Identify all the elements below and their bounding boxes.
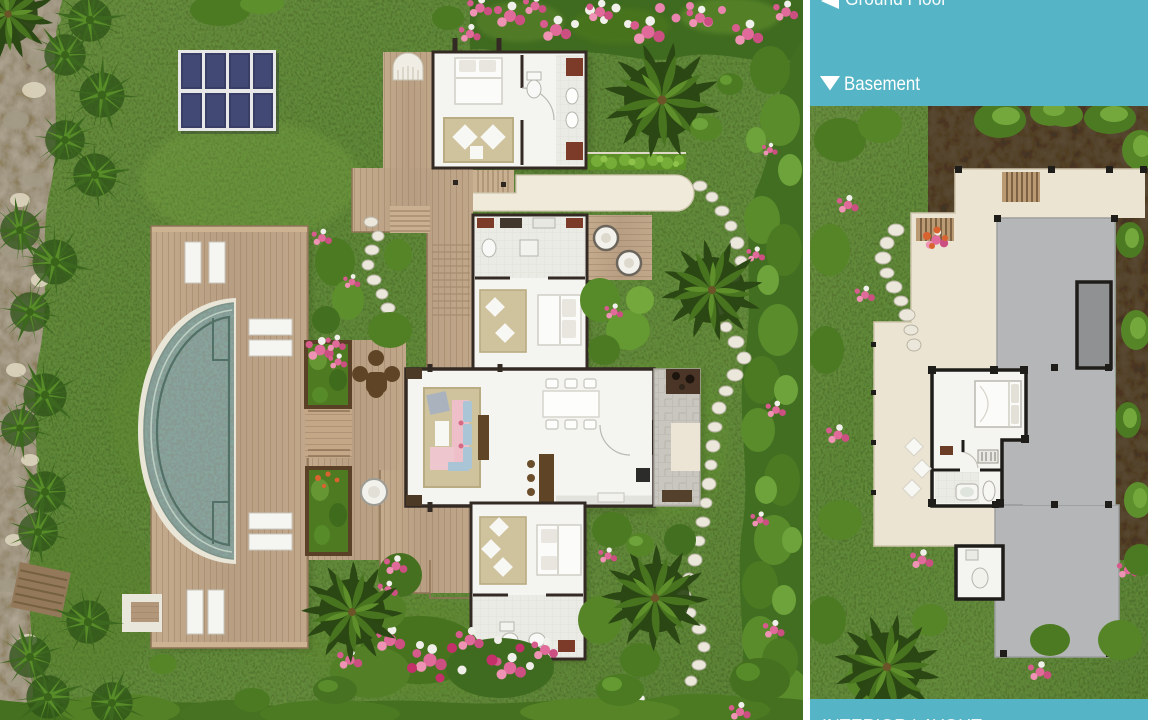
svg-text:INTERIOR LAYOUT: INTERIOR LAYOUT: [822, 716, 982, 720]
svg-text:Basement: Basement: [844, 73, 920, 95]
svg-text:Ground Floor: Ground Floor: [845, 0, 947, 10]
